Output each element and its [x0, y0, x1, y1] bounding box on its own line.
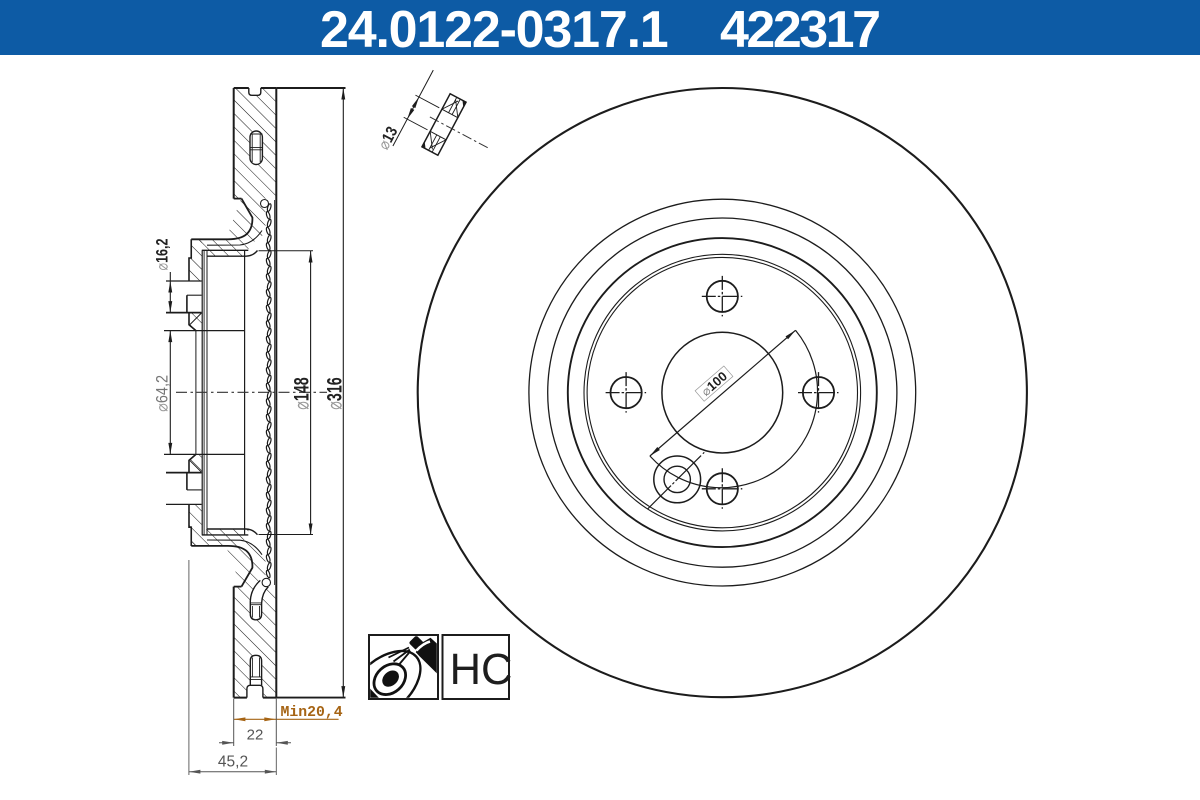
- svg-text:⌀316: ⌀316: [323, 377, 346, 409]
- svg-text:⌀148: ⌀148: [290, 377, 313, 409]
- svg-text:24.0122-0317.1: 24.0122-0317.1: [320, 1, 668, 59]
- svg-text:⌀16,2: ⌀16,2: [154, 239, 172, 271]
- svg-text:⌀64,2: ⌀64,2: [153, 375, 171, 412]
- svg-text:22: 22: [247, 727, 264, 744]
- svg-text:Min20,4: Min20,4: [281, 705, 343, 721]
- svg-text:HC: HC: [450, 646, 513, 694]
- svg-text:45,2: 45,2: [218, 754, 248, 771]
- svg-text:422317: 422317: [720, 1, 879, 59]
